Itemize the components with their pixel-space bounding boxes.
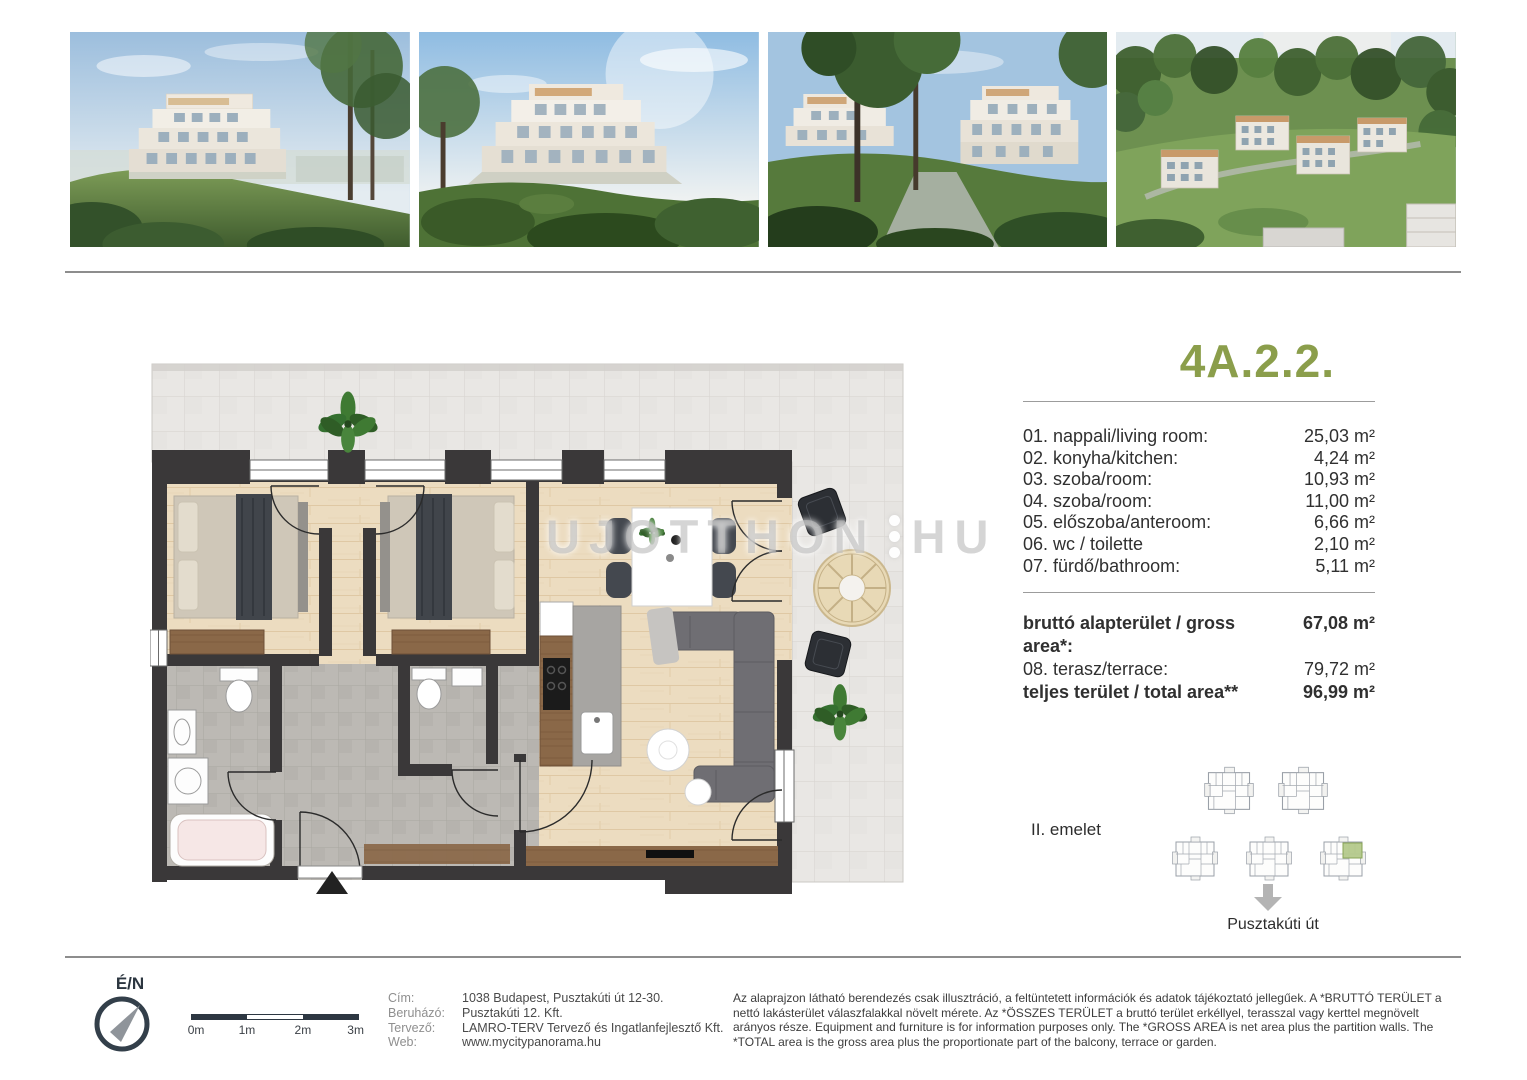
contact-label: Tervező:	[388, 1021, 462, 1036]
summary-row-total: teljes terület / total area**96,99 m²	[1023, 681, 1375, 704]
contact-value: www.mycitypanorama.hu	[462, 1035, 601, 1050]
summary-value: 96,99 m²	[1303, 681, 1375, 704]
render-hillside-scene	[70, 32, 410, 247]
photo-building-render-3	[768, 32, 1108, 247]
room-row: 07. fürdő/bathroom:5,11 m²	[1023, 556, 1375, 578]
scale-tick: 3m	[347, 1023, 364, 1037]
scale-tick: 2m	[295, 1023, 312, 1037]
room-value: 2,10 m²	[1314, 534, 1375, 556]
coffee-table	[647, 729, 689, 771]
room-value: 6,66 m²	[1314, 512, 1375, 534]
floor-plan-drawing	[150, 362, 910, 907]
scale-bar: 0m 1m 2m 3m	[191, 1014, 359, 1039]
contact-value: 1038 Budapest, Pusztakúti út 12-30.	[462, 991, 664, 1006]
contact-label: Cím:	[388, 991, 462, 1006]
side-table	[685, 779, 711, 805]
room-row: 05. előszoba/anteroom:6,66 m²	[1023, 512, 1375, 534]
room-row: 04. szoba/room:11,00 m²	[1023, 491, 1375, 513]
contact-row: Beruházó: Pusztakúti 12. Kft.	[388, 1006, 723, 1021]
tv	[646, 850, 694, 858]
watermark: UJOTTHON HU	[546, 509, 997, 564]
contact-label: Web:	[388, 1035, 462, 1050]
miniplan-icon	[1171, 834, 1219, 884]
room-value: 11,00 m²	[1305, 491, 1375, 513]
render-aerial-scene	[1116, 32, 1456, 247]
room-row: 01. nappali/living room:25,03 m²	[1023, 426, 1375, 448]
compass: É/N	[84, 974, 160, 1058]
room-value: 5,11 m²	[1315, 556, 1375, 578]
photo-building-render-4	[1116, 32, 1456, 247]
miniplan-highlighted-icon	[1319, 834, 1367, 884]
stove	[543, 658, 570, 710]
room-value: 10,93 m²	[1304, 469, 1375, 491]
summary-row-terrace: 08. terasz/terrace:79,72 m²	[1023, 658, 1375, 681]
arrow-down-icon	[1254, 884, 1282, 912]
kitchen	[540, 602, 621, 766]
street-label: Pusztakúti út	[1153, 916, 1393, 934]
unit-info-panel: 4A.2.2. 01. nappali/living room:25,03 m²…	[1023, 336, 1375, 704]
contact-value: Pusztakúti 12. Kft.	[462, 1006, 563, 1021]
watermark-suffix: HU	[912, 509, 998, 564]
summary-label: teljes terület / total area**	[1023, 681, 1238, 704]
panel-divider	[1023, 592, 1375, 593]
miniplan-icon	[1203, 764, 1255, 818]
scale-tick: 0m	[188, 1023, 205, 1037]
panel-divider	[1023, 401, 1375, 402]
room-row: 06. wc / toilette2,10 m²	[1023, 534, 1375, 556]
miniplan-icon	[1245, 834, 1293, 884]
room-label: 05. előszoba/anteroom:	[1023, 512, 1211, 534]
room-value: 25,03 m²	[1304, 426, 1375, 448]
divider-bottom	[65, 956, 1461, 958]
render-two-blocks-scene	[768, 32, 1108, 247]
scale-bar-ticks: 0m 1m 2m 3m	[191, 1023, 359, 1039]
room-label: 07. fürdő/bathroom:	[1023, 556, 1180, 578]
compass-icon	[93, 995, 151, 1053]
contact-row: Tervező: LAMRO-TERV Tervező és Ingatlanf…	[388, 1021, 723, 1036]
room-value: 4,24 m²	[1314, 448, 1375, 470]
contact-block: Cím: 1038 Budapest, Pusztakúti út 12-30.…	[388, 991, 723, 1050]
watermark-text: UJOTTHON	[546, 509, 877, 564]
room-row: 02. konyha/kitchen:4,24 m²	[1023, 448, 1375, 470]
summary-label: 08. terasz/terrace:	[1023, 658, 1168, 681]
room-list: 01. nappali/living room:25,03 m² 02. kon…	[1023, 426, 1375, 577]
photo-building-render-2	[419, 32, 759, 247]
unit-title: 4A.2.2.	[1023, 336, 1375, 386]
room-row: 03. szoba/room:10,93 m²	[1023, 469, 1375, 491]
summary-value: 79,72 m²	[1304, 658, 1375, 681]
divider-top	[65, 271, 1461, 273]
area-summary: bruttó alapterület / gross area*:67,08 m…	[1023, 612, 1375, 704]
unit-highlight	[1343, 843, 1362, 858]
site-minimap: II. emelet Pusztakúti út	[1023, 756, 1375, 956]
summary-label: bruttó alapterület / gross area*:	[1023, 612, 1261, 658]
compass-label: É/N	[100, 974, 160, 994]
scale-bar-segments	[191, 1014, 359, 1020]
disclaimer-text: Az alaprajzon látható berendezés csak il…	[733, 991, 1450, 1049]
miniplan-icon	[1277, 764, 1329, 818]
scale-tick: 1m	[239, 1023, 256, 1037]
entry-bench	[364, 844, 510, 864]
photo-strip	[70, 32, 1456, 247]
watermark-dots-icon	[889, 515, 900, 558]
contact-value: LAMRO-TERV Tervező és Ingatlanfejlesztő …	[462, 1021, 723, 1036]
summary-row-gross: bruttó alapterület / gross area*:67,08 m…	[1023, 612, 1375, 658]
room-label: 01. nappali/living room:	[1023, 426, 1208, 448]
room-label: 06. wc / toilette	[1023, 534, 1143, 556]
contact-row: Web: www.mycitypanorama.hu	[388, 1035, 723, 1050]
floor-level-label: II. emelet	[1031, 820, 1101, 840]
summary-value: 67,08 m²	[1303, 612, 1375, 635]
floor-plan	[150, 362, 910, 907]
contact-label: Beruházó:	[388, 1006, 462, 1021]
room-label: 02. konyha/kitchen:	[1023, 448, 1178, 470]
render-garden-scene	[419, 32, 759, 247]
contact-row: Cím: 1038 Budapest, Pusztakúti út 12-30.	[388, 991, 723, 1006]
room-label: 03. szoba/room:	[1023, 469, 1152, 491]
room-label: 04. szoba/room:	[1023, 491, 1152, 513]
photo-building-render-1	[70, 32, 410, 247]
